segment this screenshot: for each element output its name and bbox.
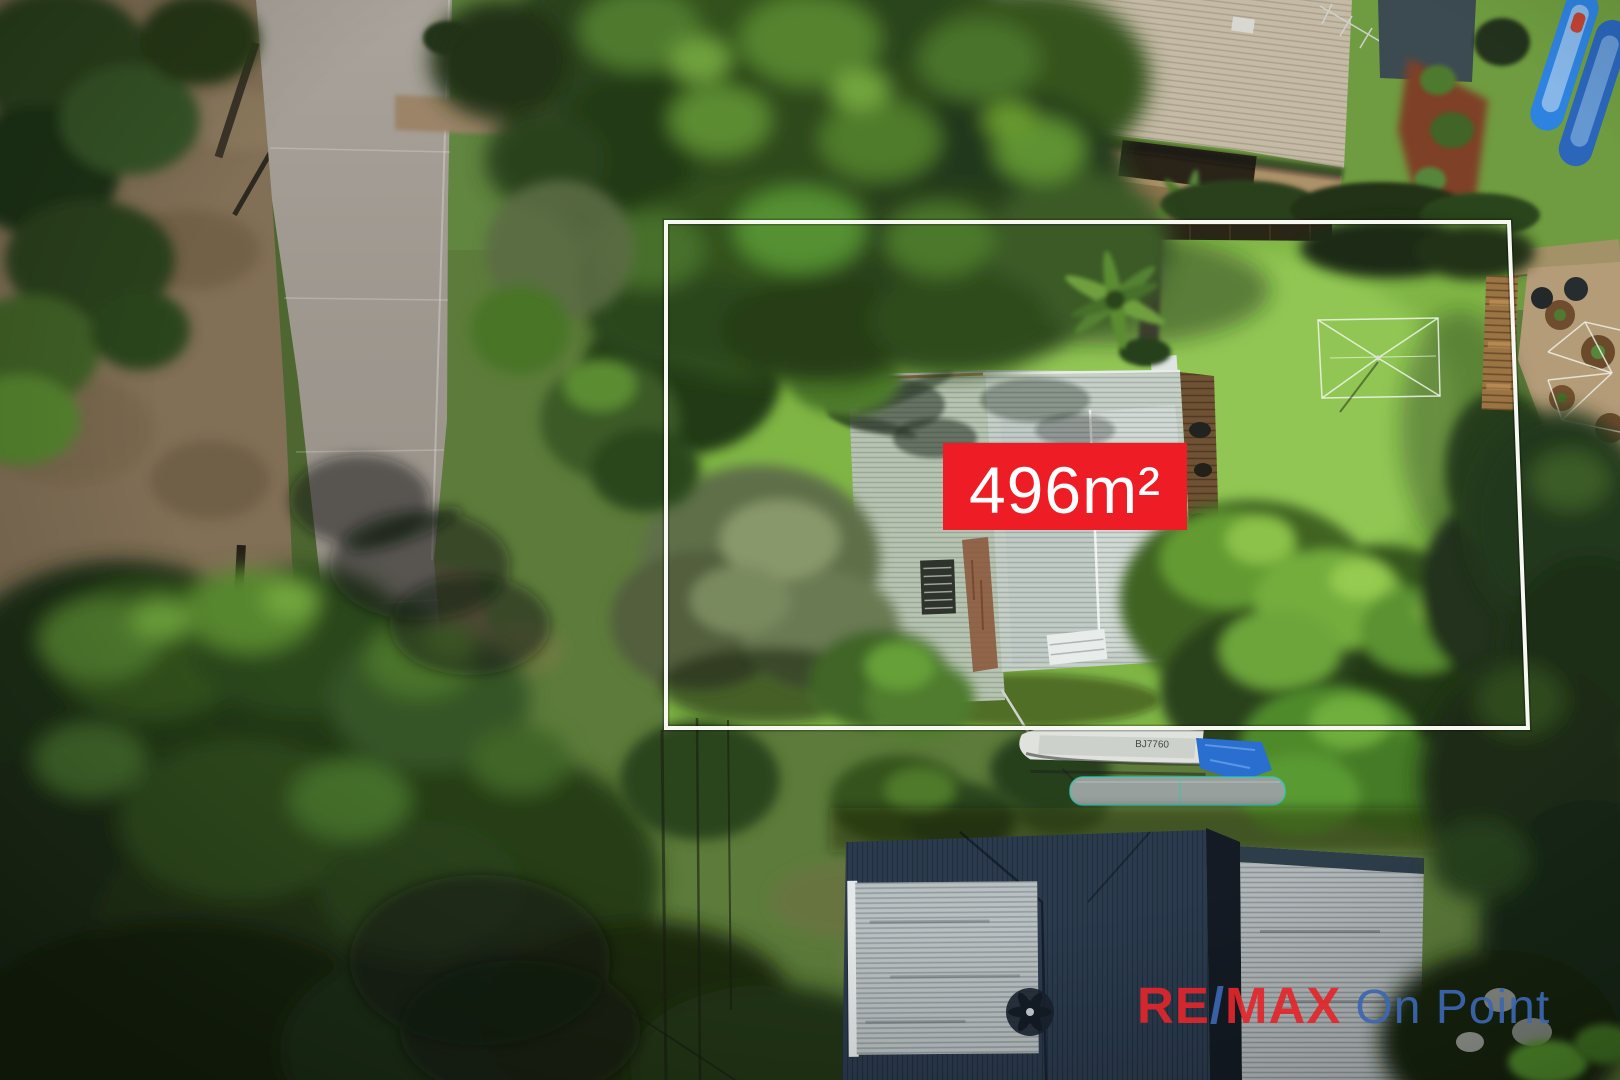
watermark-re: RE <box>1137 977 1210 1034</box>
photo-vignette <box>0 0 1620 1080</box>
aerial-photo-canvas: BJ7760 <box>0 0 1620 1080</box>
aerial-listing-photo: BJ7760 <box>0 0 1620 1080</box>
watermark-suffix: On Point <box>1355 981 1550 1034</box>
watermark-max: MAX <box>1225 977 1341 1034</box>
watermark-slash: / <box>1210 977 1225 1034</box>
area-label: 496m² <box>943 443 1187 530</box>
area-label-text: 496m² <box>969 453 1161 527</box>
